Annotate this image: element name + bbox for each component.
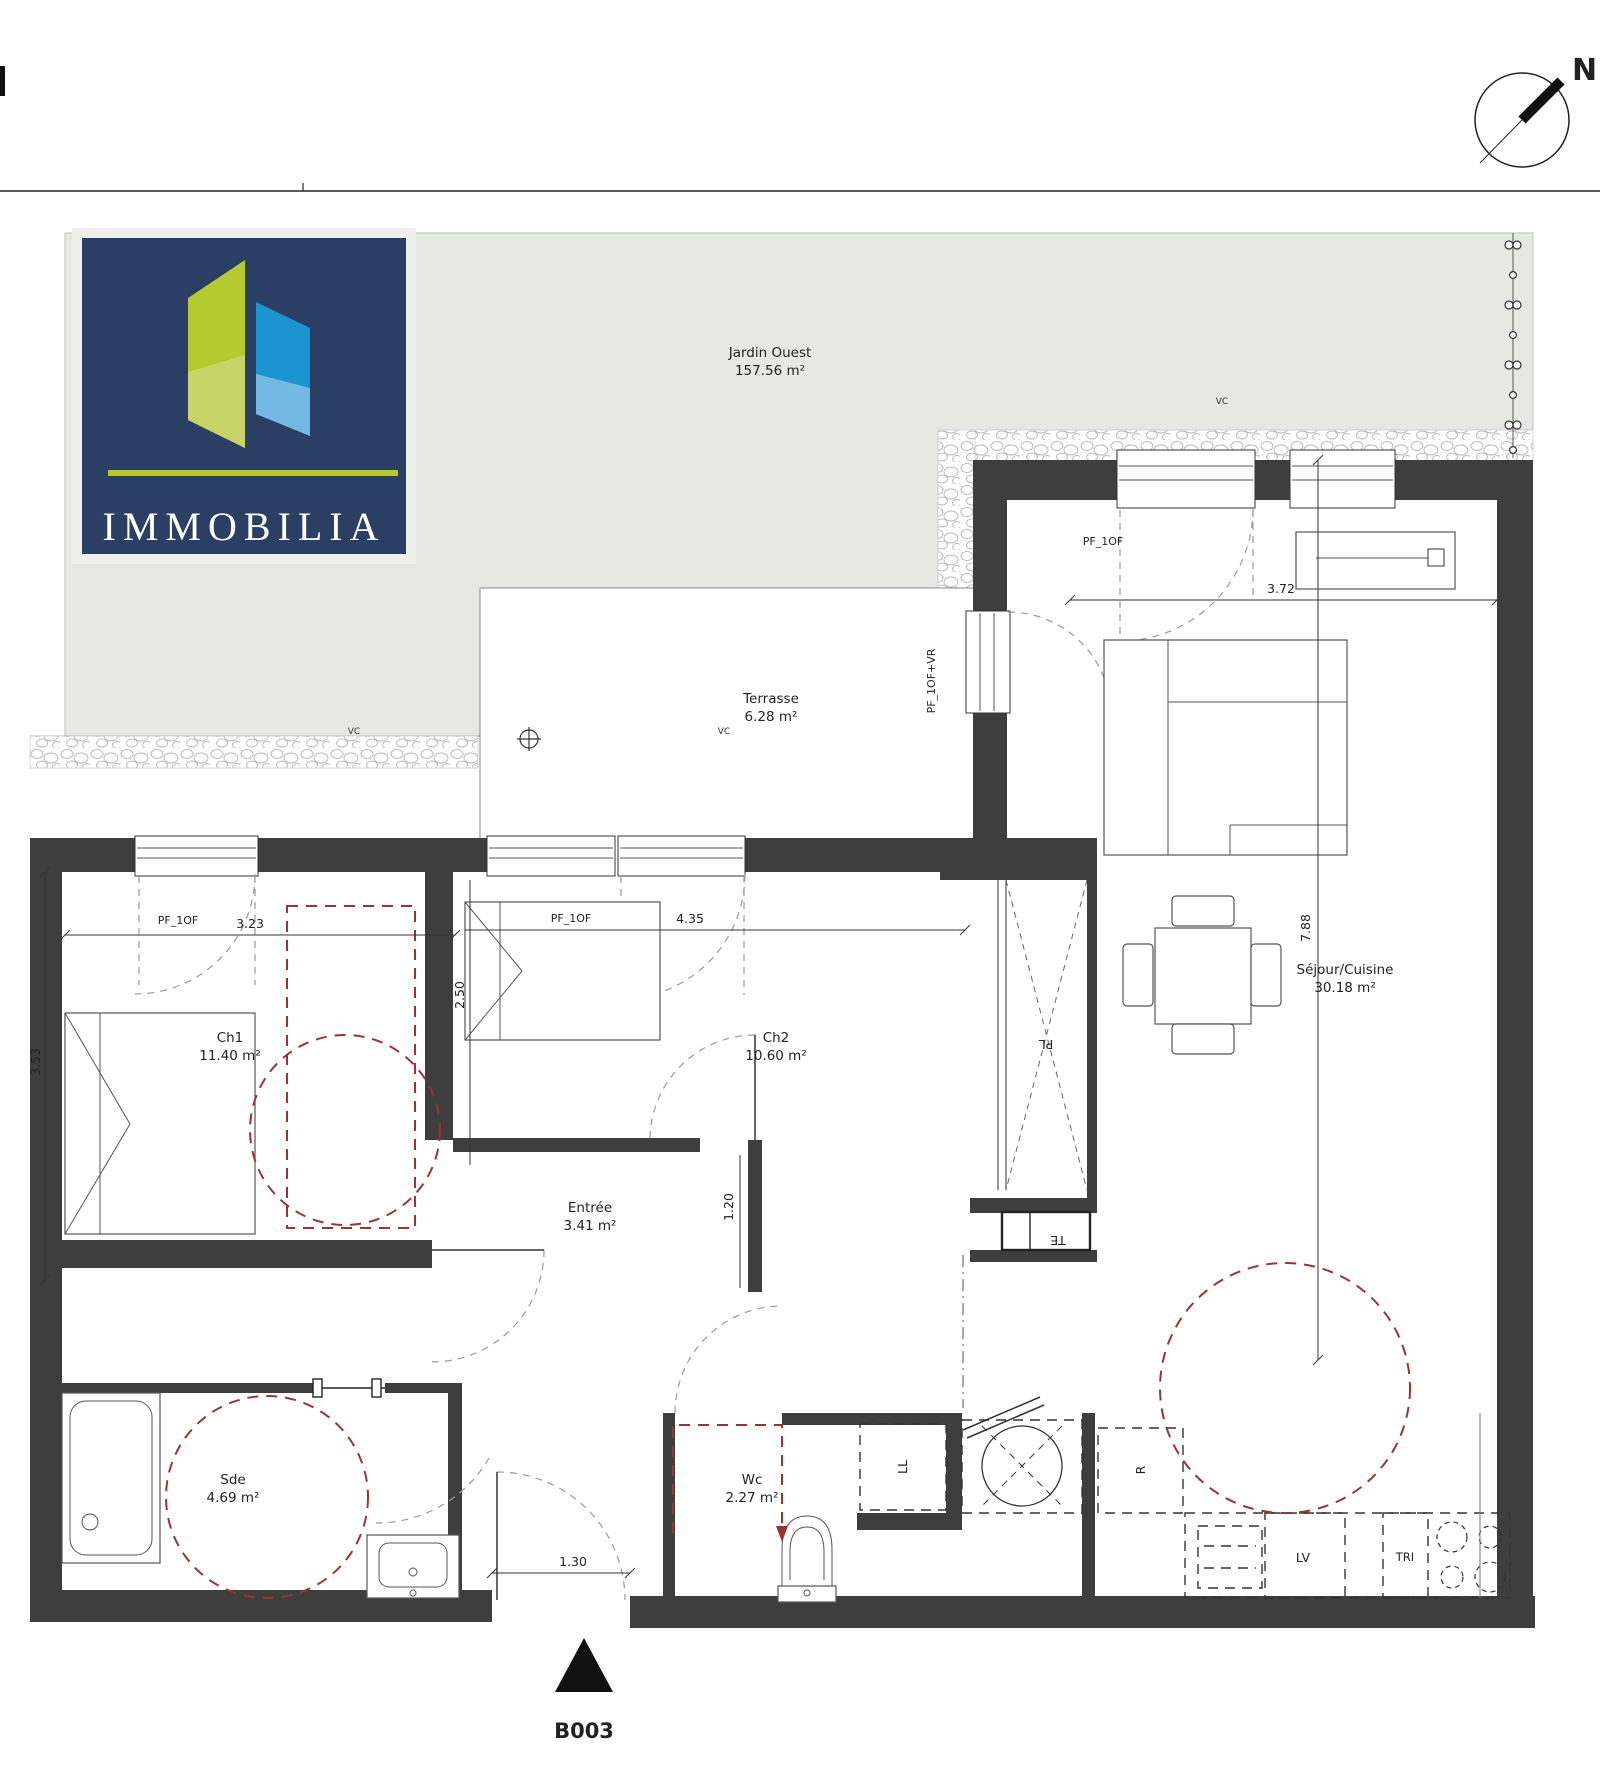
label-jardin-name: Jardin Ouest	[728, 345, 812, 361]
washer-label: LL	[895, 1460, 910, 1474]
label-sde-area: 4.69 m²	[207, 1490, 260, 1506]
wall-segment	[1087, 880, 1097, 1198]
window-ch2	[618, 836, 745, 876]
label-ch1-area: 11.40 m²	[199, 1048, 261, 1064]
dim-ch2-width: 4.35	[676, 911, 704, 926]
wall-segment	[745, 838, 975, 872]
shower	[62, 1393, 160, 1563]
terrace-area	[480, 588, 973, 838]
wall-segment	[30, 838, 62, 1590]
sheet-edge-mark	[0, 66, 5, 96]
door-tag-vr: PF_1OF+VR	[925, 648, 938, 713]
wall-segment	[62, 1240, 432, 1268]
wall-segment	[748, 1140, 762, 1292]
washbasin	[367, 1535, 459, 1598]
label-entree-area: 3.41 m²	[564, 1218, 617, 1234]
dim-entry-width: 1.30	[559, 1554, 587, 1569]
window-tag-sejour: PF_1OF	[1083, 535, 1123, 548]
unit-number: B003	[554, 1719, 614, 1743]
wall-segment	[1497, 460, 1533, 1628]
wall-segment	[973, 713, 1007, 838]
electrical-board-te: TE	[1002, 1212, 1090, 1250]
wall-segment	[973, 460, 1007, 611]
tv-cabinet	[1296, 532, 1455, 589]
window-sejour-1	[1117, 450, 1255, 508]
wall-segment	[385, 1383, 448, 1393]
te-label: TE	[1050, 1233, 1067, 1248]
label-terrasse-name: Terrasse	[742, 691, 799, 707]
floor-plan-page: N	[0, 0, 1600, 1778]
label-sejour-name: Séjour/Cuisine	[1297, 962, 1394, 978]
dim-sejour-depth: 7.88	[1298, 914, 1313, 942]
label-entree-name: Entrée	[568, 1200, 612, 1216]
dishwasher-label: LV	[1296, 1550, 1311, 1565]
window-ch1	[135, 836, 258, 876]
label-sde-name: Sde	[220, 1472, 245, 1488]
wall-segment	[663, 1413, 675, 1425]
wall-segment	[62, 1383, 315, 1393]
wall-segment	[630, 1596, 1535, 1628]
wall-segment	[1082, 1413, 1095, 1598]
fridge-label: R	[1133, 1465, 1148, 1474]
label-ch2-name: Ch2	[763, 1030, 790, 1046]
vc-tag-3: VC	[1216, 397, 1228, 407]
label-ch2-area: 10.60 m²	[745, 1048, 807, 1064]
closet-label: PL	[1039, 1037, 1054, 1052]
dim-ch1-depth: 3.53	[28, 1048, 43, 1076]
wall-segment	[970, 1198, 1097, 1213]
logo-immobilia: IMMOBILIA	[72, 228, 416, 564]
floor-plan-svg: N	[0, 0, 1600, 1778]
dim-ch1-width: 3.23	[236, 916, 264, 931]
label-wc-name: Wc	[742, 1472, 763, 1488]
terrace-door	[487, 836, 615, 876]
wall-segment	[453, 1138, 700, 1152]
sofa	[1104, 640, 1347, 855]
dim-sejour-width: 3.72	[1267, 581, 1295, 596]
wall-segment	[857, 1513, 962, 1530]
label-sejour-area: 30.18 m²	[1314, 980, 1376, 996]
wall-segment	[946, 1413, 962, 1513]
vc-tag-2: VC	[718, 727, 730, 737]
window-sejour-2	[1290, 450, 1395, 508]
wall-segment	[782, 1413, 962, 1425]
window-tag-ch2: PF_1OF	[551, 912, 591, 925]
dim-hall-width: 1.20	[721, 1193, 736, 1221]
logo-brand-text: IMMOBILIA	[103, 504, 386, 549]
label-ch1-name: Ch1	[217, 1030, 244, 1046]
north-label: N	[1572, 53, 1597, 88]
wall-segment	[970, 1250, 1097, 1262]
label-terrasse-area: 6.28 m²	[745, 709, 798, 725]
door-sejour-terrace	[966, 611, 1010, 713]
label-jardin-area: 157.56 m²	[735, 363, 805, 379]
label-wc-area: 2.27 m²	[726, 1490, 779, 1506]
wall-segment	[258, 838, 487, 872]
window-tag-ch1: PF_1OF	[158, 914, 198, 927]
dim-ch2-depth: 2.50	[452, 981, 467, 1009]
tri-label: TRI	[1395, 1550, 1414, 1564]
logo-divider	[108, 470, 398, 476]
vc-tag-1: VC	[348, 727, 360, 737]
bed-ch1	[65, 1013, 255, 1234]
wall-segment	[425, 872, 453, 1140]
